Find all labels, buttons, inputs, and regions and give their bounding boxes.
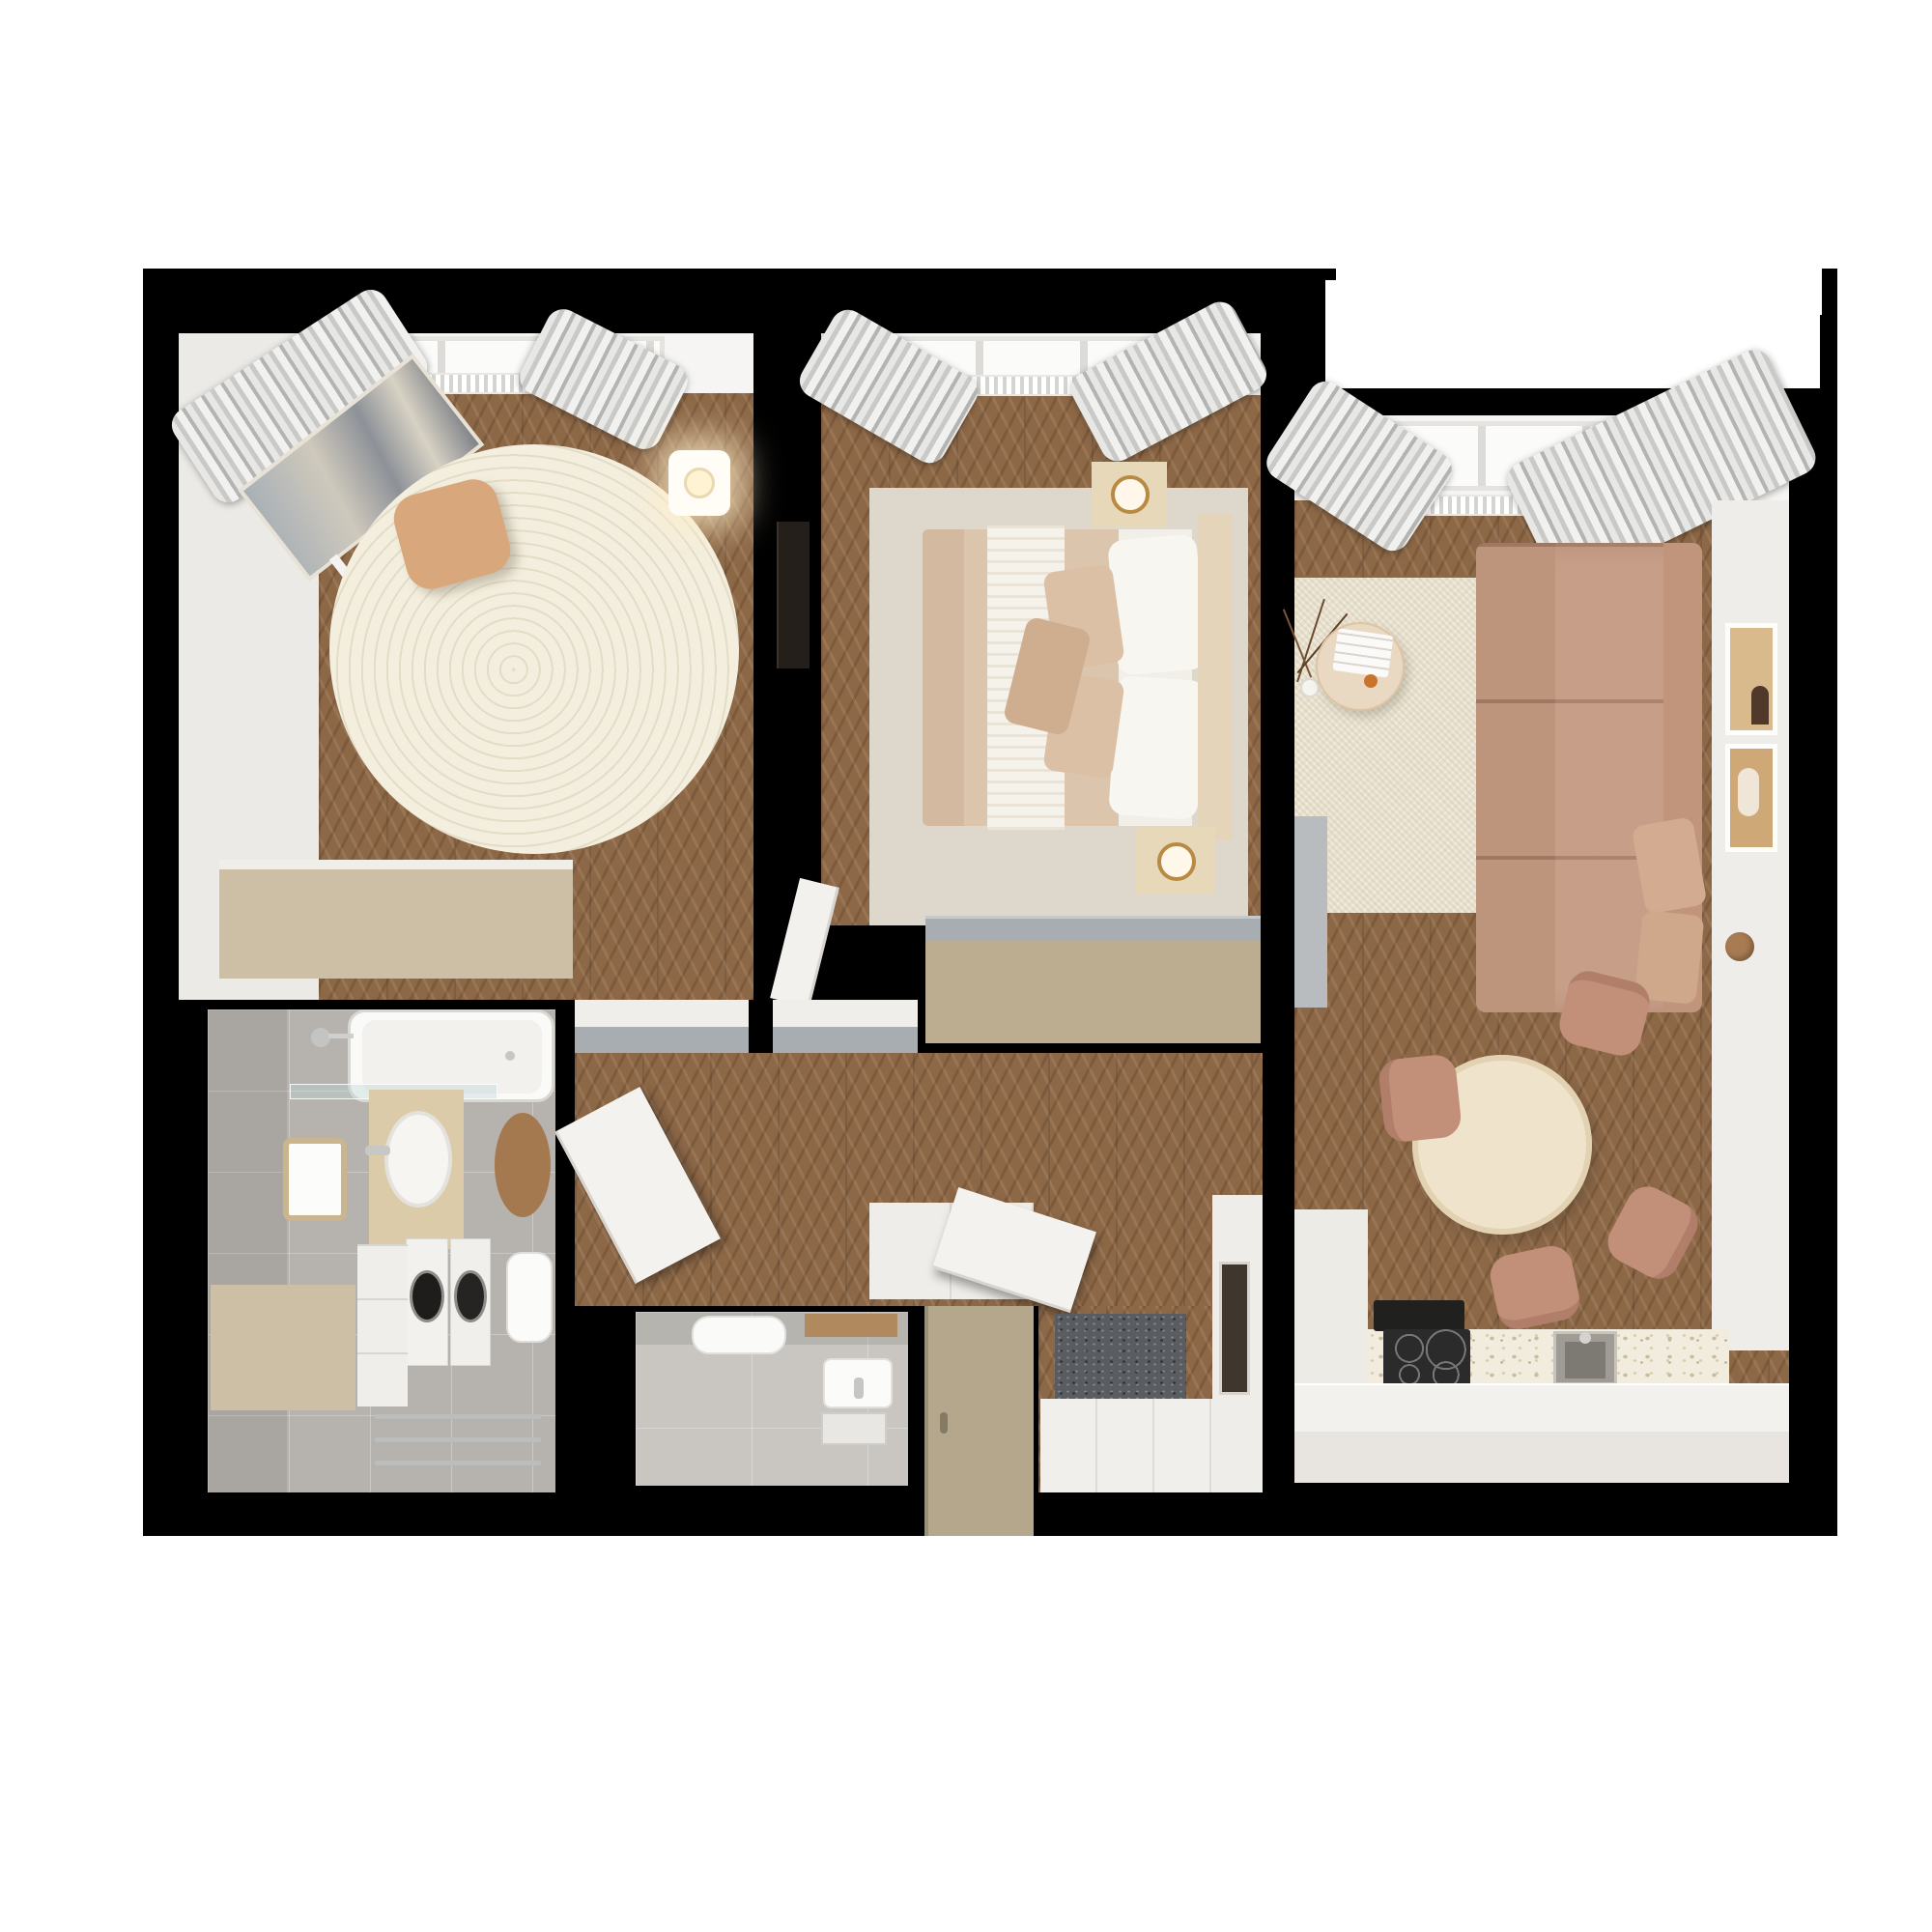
wc-sink-faucet	[854, 1378, 864, 1399]
room-wc	[0, 0, 1932, 1932]
wc-mirror	[821, 1412, 887, 1445]
floor-plan-canvas	[0, 0, 1932, 1932]
wc-wood-shelf	[805, 1314, 897, 1337]
wc-wall-hung-toilet	[692, 1316, 786, 1354]
wc-sink	[823, 1358, 893, 1408]
